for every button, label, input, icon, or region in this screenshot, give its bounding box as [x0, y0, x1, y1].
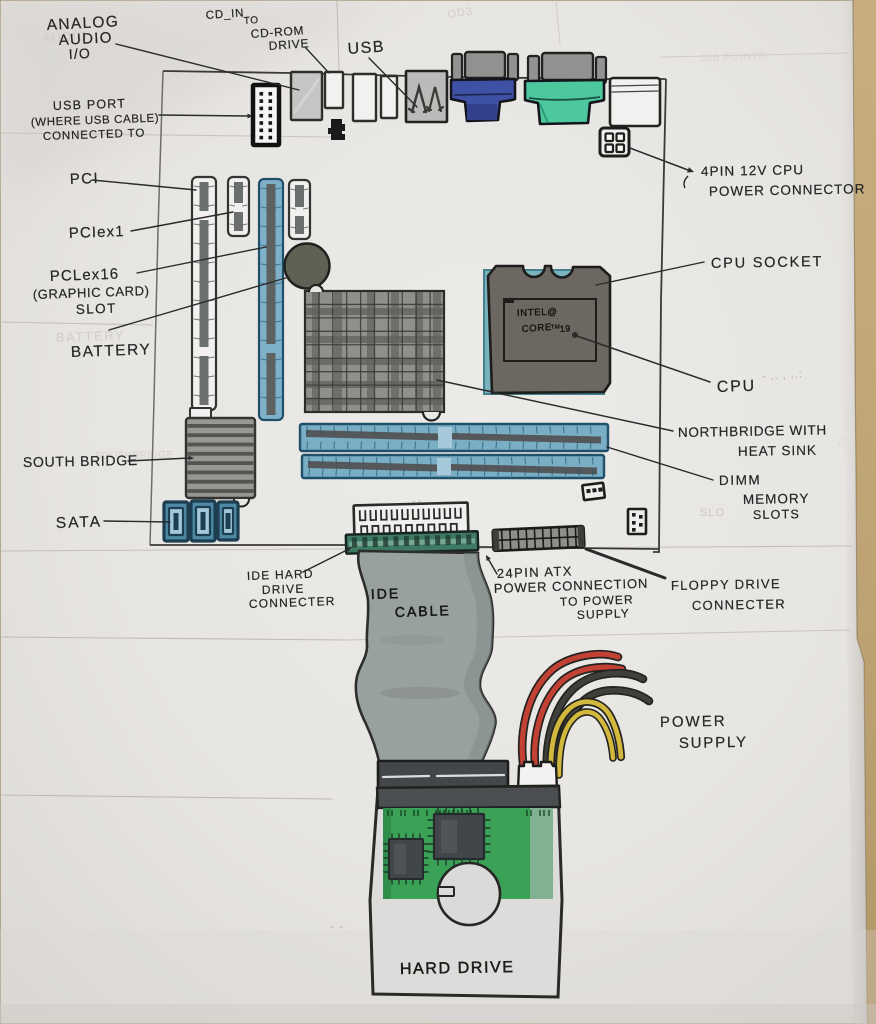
svg-text:PCI: PCI — [70, 170, 100, 188]
svg-text:HARD DRIVE: HARD DRIVE — [400, 959, 515, 978]
svg-text:CABLE: CABLE — [395, 602, 451, 620]
svg-text:IDE: IDE — [371, 585, 401, 602]
svg-text:.:: .: — [837, 434, 846, 447]
svg-text:CPU: CPU — [717, 378, 757, 396]
svg-text:DIMM: DIMM — [719, 472, 762, 488]
svg-text:TO: TO — [243, 15, 259, 27]
svg-text:DRIVE: DRIVE — [268, 36, 310, 53]
svg-text:CPU SOCKET: CPU SOCKET — [711, 254, 824, 272]
svg-text:19: 19 — [559, 323, 571, 334]
svg-text:- -: - - — [330, 919, 344, 933]
svg-text:POWER: POWER — [660, 713, 727, 731]
svg-text:SUPPLY: SUPPLY — [679, 734, 748, 752]
svg-text:USB PORT: USB PORT — [53, 96, 127, 113]
svg-text:USB: USB — [347, 38, 386, 58]
svg-text:NORTHBRIDGE WITH: NORTHBRIDGE WITH — [678, 422, 827, 440]
svg-text:BATTERY: BATTERY — [71, 341, 152, 361]
svg-text:PCIex1: PCIex1 — [69, 223, 125, 242]
svg-text:INTEL@: INTEL@ — [517, 307, 558, 319]
svg-text:PCLex16: PCLex16 — [50, 266, 120, 285]
svg-text:4PIN 12V CPU: 4PIN 12V CPU — [701, 162, 804, 179]
svg-text:SLOTS: SLOTS — [753, 507, 800, 522]
svg-text:SLO: SLO — [700, 507, 725, 519]
svg-text:FLOPPY DRIVE: FLOPPY DRIVE — [671, 576, 781, 593]
svg-text:SUPPLY: SUPPLY — [577, 606, 631, 622]
svg-text:I/O: I/O — [68, 45, 91, 62]
svg-text:CONNECTER: CONNECTER — [692, 596, 786, 613]
svg-text:SATA: SATA — [56, 513, 103, 532]
svg-text:SLOT: SLOT — [76, 301, 117, 317]
svg-text:MEMORY: MEMORY — [743, 491, 810, 507]
svg-text:SOUTH BRIDGE: SOUTH BRIDGE — [23, 452, 138, 470]
svg-text:POWER CONNECTOR: POWER CONNECTOR — [709, 181, 866, 199]
svg-text:CORE: CORE — [521, 322, 552, 335]
svg-text:HEAT SINK: HEAT SINK — [738, 443, 817, 459]
